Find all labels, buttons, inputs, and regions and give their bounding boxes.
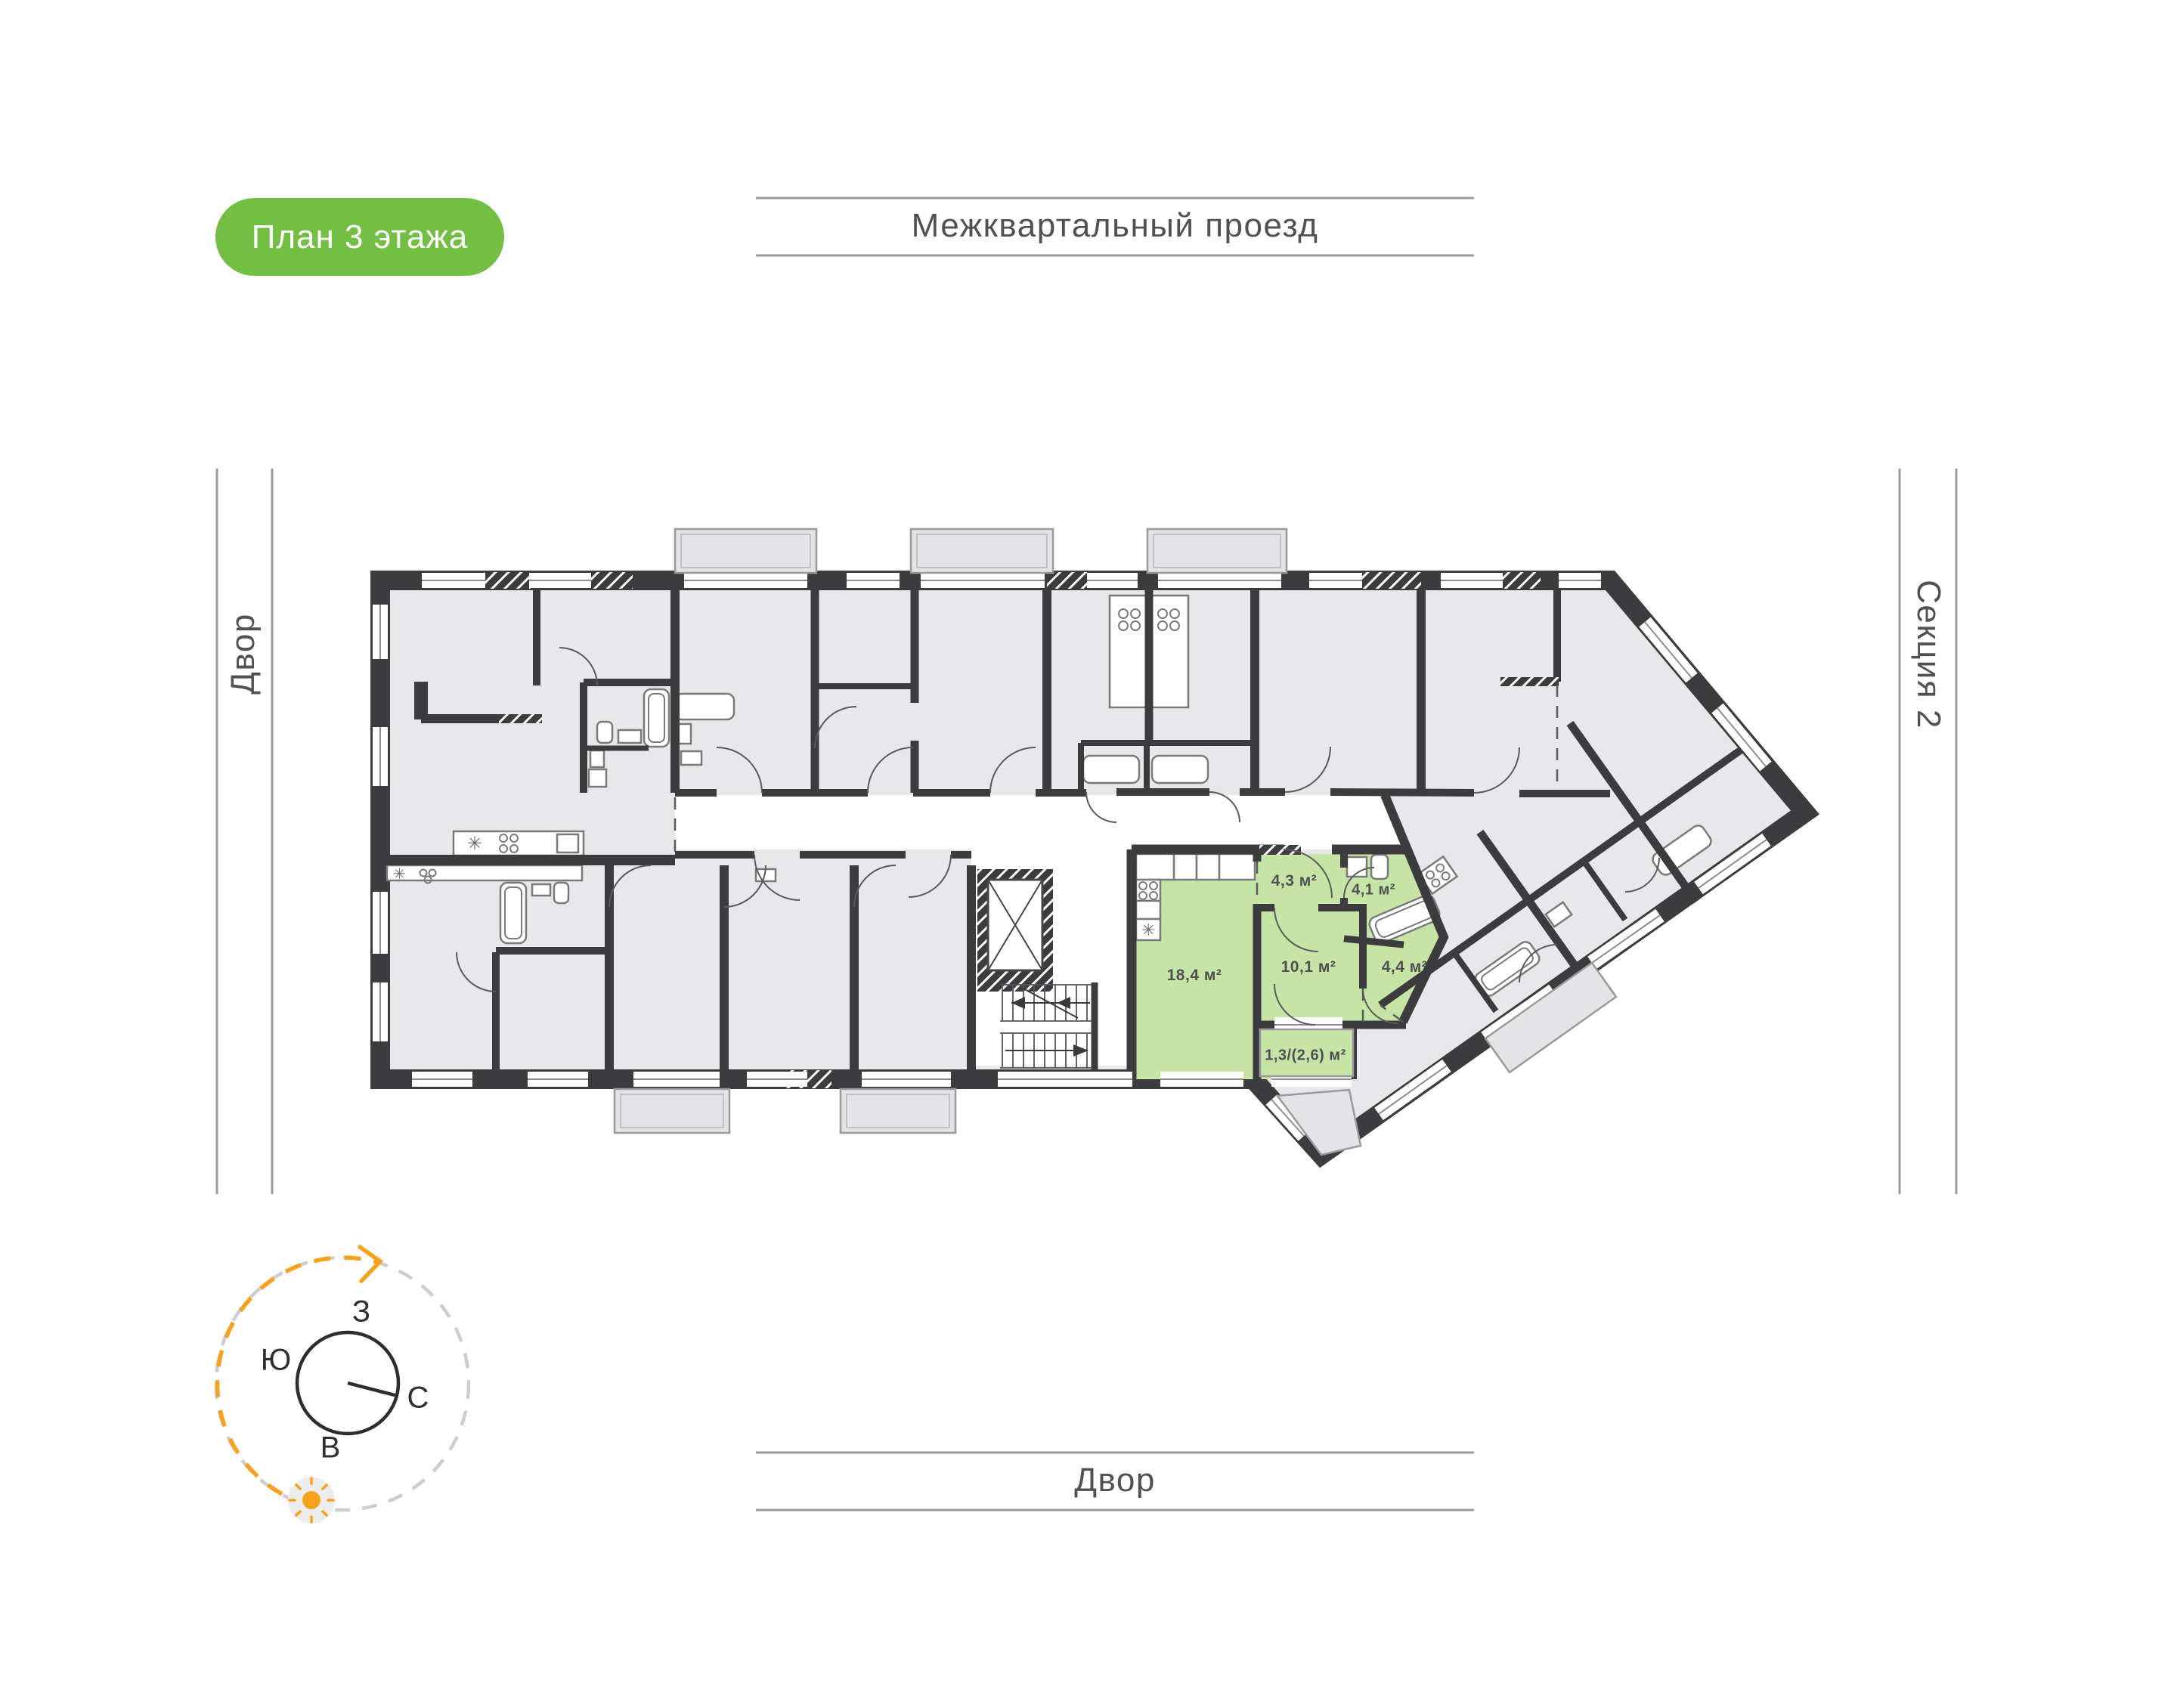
room-area-label: 1,3/(2,6) м²	[1265, 1047, 1346, 1065]
street-label-top: Межквартальный проезд	[912, 207, 1319, 245]
floor-plan-page: ✳ ✳ ✳	[0, 0, 2177, 1708]
street-label-left: Двор	[225, 613, 262, 695]
svg-text:✳: ✳	[1141, 921, 1155, 939]
room-area-label: 4,4 м²	[1382, 958, 1428, 976]
svg-text:✳: ✳	[467, 834, 482, 854]
section-label: Секция 2	[1909, 580, 1947, 729]
compass-arrow-icon	[360, 1247, 380, 1281]
compass-south-label: Ю	[261, 1344, 291, 1378]
svg-text:✳: ✳	[393, 866, 406, 883]
compass-east-label: В	[321, 1431, 341, 1465]
compass	[216, 1247, 469, 1524]
compass-north-label: С	[407, 1382, 429, 1416]
room-area-label: 4,3 м²	[1271, 872, 1318, 890]
room-area-label: 10,1 м²	[1281, 958, 1336, 976]
room-area-label: 18,4 м²	[1167, 967, 1222, 985]
elevator-shaft	[977, 869, 1053, 992]
room-area-label: 4,1 м²	[1352, 882, 1395, 899]
compass-west-label: З	[352, 1295, 370, 1329]
floor-plan-badge: План 3 этажа	[215, 198, 504, 276]
street-label-bottom: Двор	[1074, 1462, 1156, 1499]
sun-icon	[288, 1477, 335, 1524]
